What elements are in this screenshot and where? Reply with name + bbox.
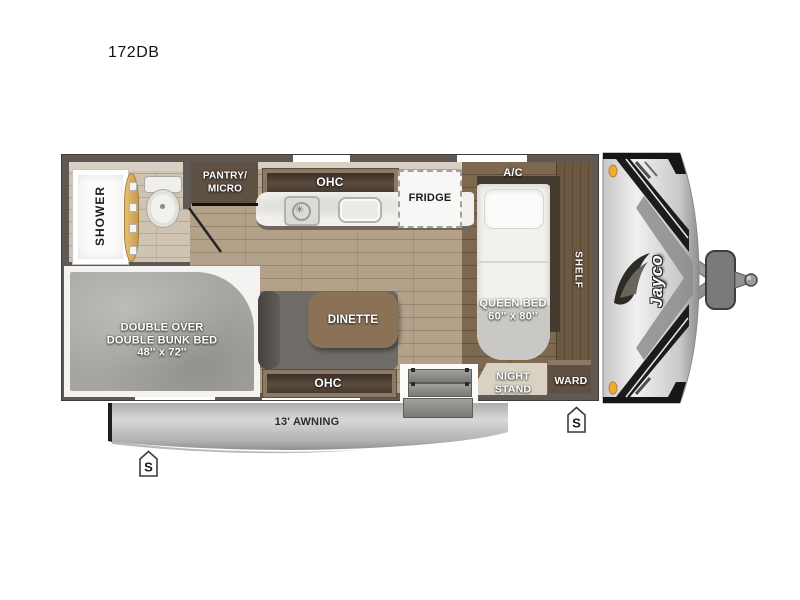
cooktop-icon — [284, 196, 320, 226]
step-peg — [465, 368, 469, 372]
dinette-ohc-label: OHC — [314, 377, 341, 390]
shower-hinge-icon — [129, 182, 137, 191]
window-top-kitchen — [293, 155, 350, 162]
queen-bed — [477, 184, 550, 360]
clearance-light-icon — [609, 382, 617, 394]
entry-step — [408, 369, 472, 383]
burner-icon — [292, 202, 311, 221]
step-peg — [411, 368, 415, 372]
sink-icon — [338, 197, 382, 223]
pillow-icon — [484, 189, 544, 229]
shelf-label: SHELF — [571, 251, 584, 289]
jayco-logo: Jayco — [646, 238, 668, 324]
model-title: 172DB — [108, 44, 159, 62]
entry-step — [403, 398, 473, 418]
hitch-ball-icon — [745, 274, 757, 286]
step-peg — [411, 382, 415, 386]
step-peg — [465, 382, 469, 386]
clearance-light-icon — [609, 165, 617, 177]
shower-hinge-icon — [129, 246, 137, 255]
toilet-flush-icon — [160, 204, 165, 209]
shower-label: SHOWER — [94, 186, 107, 246]
blanket-fold — [477, 261, 550, 263]
awning-label: 13' AWNING — [275, 416, 340, 429]
svg-text:S: S — [144, 460, 153, 475]
fridge-label: FRIDGE — [409, 192, 452, 205]
shower-hinge-icon — [129, 203, 137, 212]
window-top-bedroom — [457, 155, 527, 162]
ward-label: WARD — [555, 375, 588, 388]
night-stand-label: NIGHT STAND — [495, 371, 531, 396]
bunk-label: DOUBLE OVER DOUBLE BUNK BED 48'' x 72'' — [107, 321, 218, 359]
propane-cover — [706, 251, 735, 309]
kitchen-ohc-label: OHC — [316, 176, 343, 189]
dinette-label: DINETTE — [328, 314, 379, 327]
stabilizer-badge-rear: S — [138, 450, 159, 478]
bed-frame — [550, 176, 560, 332]
front-cap — [596, 148, 766, 410]
entry-step — [408, 383, 472, 397]
floorplan-canvas: 172DB SHOWER PANTRY/ MICRO OHC FRIDGE A/… — [0, 0, 800, 600]
ac-label: A/C — [503, 167, 523, 180]
pantry-label: PANTRY/ MICRO — [203, 171, 247, 196]
queen-bed-label: QUEEN BED 60'' x 80'' — [479, 298, 546, 323]
shower-hinge-icon — [129, 224, 137, 233]
dinette-bench-back — [258, 291, 280, 369]
stabilizer-badge-front: S — [566, 406, 587, 434]
svg-text:S: S — [572, 416, 581, 431]
bathroom-door-swing — [180, 200, 230, 260]
pantry-counter-edge — [192, 203, 258, 206]
